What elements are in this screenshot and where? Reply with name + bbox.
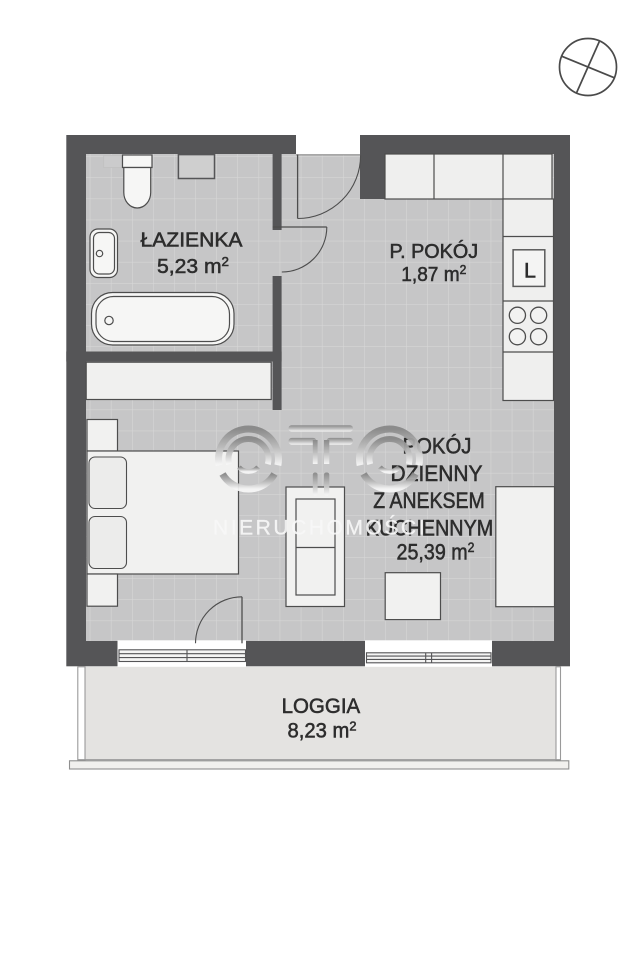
- svg-text:8,23 m2: 8,23 m2: [288, 718, 357, 742]
- svg-text:ŁAZIENKA: ŁAZIENKA: [141, 230, 244, 252]
- svg-text:L: L: [524, 259, 536, 283]
- svg-text:5,23 m2: 5,23 m2: [157, 254, 229, 278]
- svg-text:LOGGIA: LOGGIA: [282, 695, 361, 718]
- svg-text:NIERUCHOMOŚCI: NIERUCHOMOŚCI: [213, 516, 427, 540]
- svg-text:P. POKÓJ: P. POKÓJ: [390, 240, 479, 263]
- svg-text:1,87 m2: 1,87 m2: [401, 262, 466, 286]
- svg-text:25,39 m2: 25,39 m2: [397, 539, 475, 565]
